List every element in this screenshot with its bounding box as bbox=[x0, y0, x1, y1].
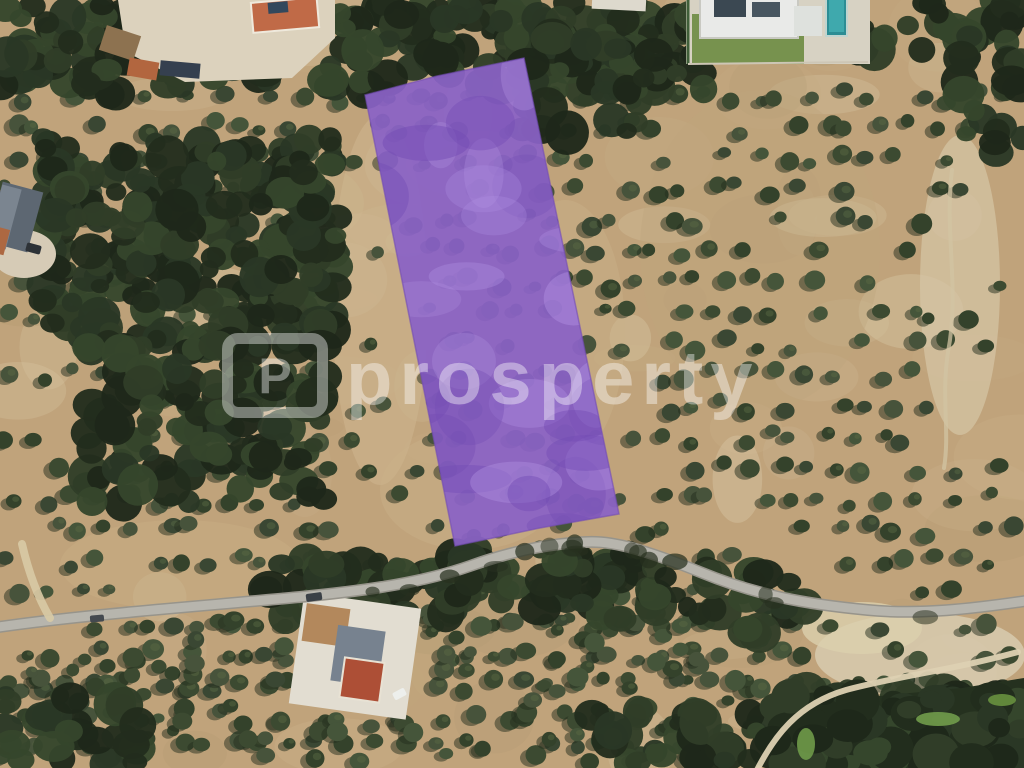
house-top-awning bbox=[268, 1, 289, 14]
swimming-pool-water bbox=[829, 0, 844, 32]
estate-wing bbox=[794, 6, 822, 36]
estate-solar-panel-1 bbox=[714, 0, 746, 17]
estate-solar-panel-2 bbox=[752, 2, 780, 17]
compound-red-roof bbox=[339, 657, 384, 702]
forest-mass-bottom-right bbox=[754, 678, 1024, 768]
aerial-photo bbox=[0, 0, 1024, 768]
car-dark-road-2 bbox=[90, 614, 105, 622]
satellite-map-image[interactable]: P prosperty bbox=[0, 0, 1024, 768]
